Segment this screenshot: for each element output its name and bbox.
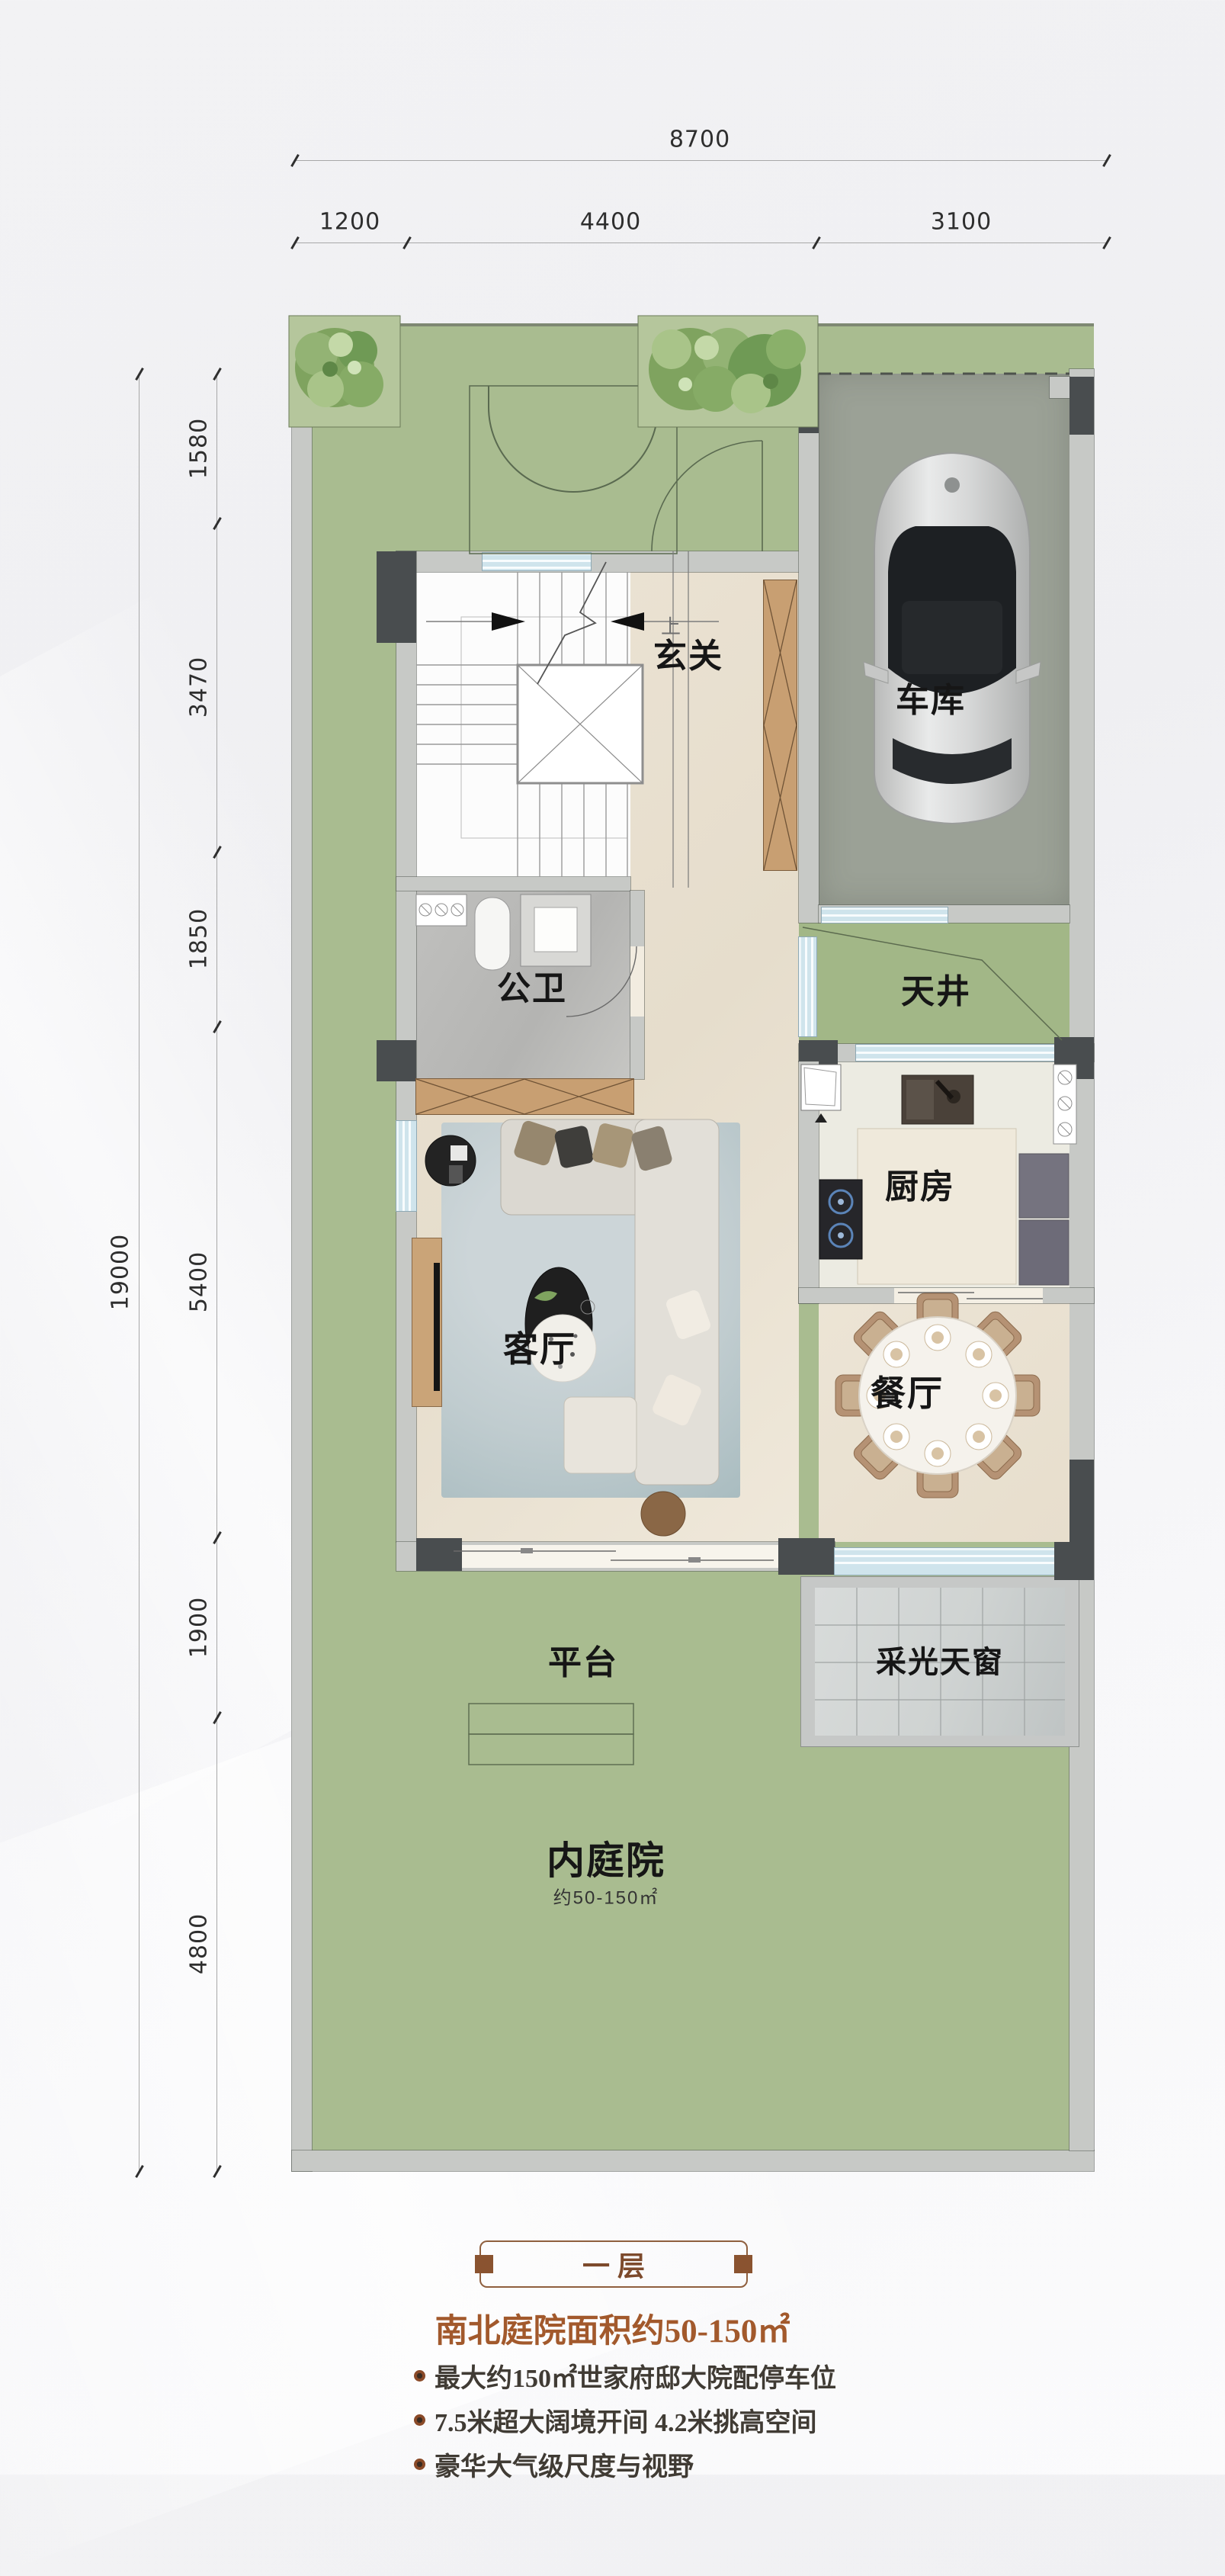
room-label-living: 客厅 <box>503 1322 576 1372</box>
dim-left-seg-2: 1850 <box>186 908 213 969</box>
bullet-text: 7.5米超大阔境开间 4.2米挑高空间 <box>435 2401 817 2439</box>
bullet-text: 豪华大气级尺度与视野 <box>435 2446 694 2483</box>
bullet-row: 7.5米超大阔境开间 4.2米挑高空间 <box>414 2398 836 2442</box>
bullet-icon <box>414 2459 425 2470</box>
terrace-slider <box>454 1548 774 1563</box>
dim-tick <box>213 2165 222 2178</box>
plan-linework <box>292 323 1094 2171</box>
room-label-courtyard: 内庭院 <box>547 1830 665 1885</box>
dim-left-seg-3: 5400 <box>186 1251 213 1312</box>
tv-screen <box>434 1263 440 1391</box>
tree-cluster-right <box>637 314 819 430</box>
dim-tick <box>135 2165 144 2178</box>
dim-top-seg-0: 1200 <box>319 209 380 236</box>
dim-top-seg-1: 4400 <box>580 209 641 236</box>
room-label-lightwell: 天井 <box>901 964 971 1013</box>
dim-tick <box>213 846 222 859</box>
dim-tick <box>213 1531 222 1544</box>
floor-badge: 一层 <box>479 2240 748 2288</box>
bullet-row: 豪华大气级尺度与视野 <box>414 2442 836 2486</box>
dim-left-seg-0: 1580 <box>186 418 213 479</box>
stair-up-label: 上 <box>661 612 682 640</box>
car <box>864 453 1041 824</box>
room-label-dining: 餐厅 <box>871 1366 944 1416</box>
side-table <box>425 1135 476 1186</box>
dim-line-left-total <box>139 374 139 2171</box>
footer-bullets: 最大约150㎡世家府邸大院配停车位 7.5米超大阔境开间 4.2米挑高空间 豪华… <box>414 2353 836 2486</box>
room-label-skylight: 采光天窗 <box>876 1637 1004 1681</box>
dim-line-left-segments <box>216 374 217 2171</box>
dim-line-top-segments <box>294 243 1106 243</box>
dim-left-seg-1: 3470 <box>186 657 213 718</box>
dim-tick <box>213 368 222 381</box>
dim-tick <box>213 517 222 530</box>
dim-left-seg-4: 1900 <box>186 1597 213 1658</box>
courtyard-steps <box>469 1704 633 1765</box>
dim-left-seg-5: 4800 <box>186 1913 213 1974</box>
room-label-bath: 公卫 <box>497 961 567 1010</box>
dim-top-seg-2: 3100 <box>931 209 992 236</box>
dim-tick <box>135 368 144 381</box>
dim-line-top-total <box>294 160 1106 161</box>
bullet-icon <box>414 2370 425 2382</box>
bullet-text: 最大约150㎡世家府邸大院配停车位 <box>435 2357 836 2395</box>
room-label-terrace: 平台 <box>548 1635 618 1684</box>
pouf <box>641 1492 685 1536</box>
bullet-row: 最大约150㎡世家府邸大院配停车位 <box>414 2353 836 2398</box>
dim-top-total: 8700 <box>669 127 730 153</box>
badge-square-left <box>475 2255 493 2273</box>
elevator-shaft <box>518 665 643 783</box>
entry-threshold <box>673 551 688 888</box>
room-label-kitchen: 厨房 <box>885 1159 955 1208</box>
floor-plan: 玄关 上 车库 公卫 天井 厨房 客厅 餐厅 平台 采光天窗 内庭院 约50-1… <box>292 323 1094 2171</box>
bullet-icon <box>414 2414 425 2426</box>
footer-subtitle: 南北庭院面积约50-150㎡ <box>0 2305 1225 2352</box>
floor-badge-label: 一层 <box>575 2244 653 2284</box>
dim-tick <box>213 1020 222 1033</box>
dim-tick <box>213 1711 222 1724</box>
yard-door-arc <box>652 441 762 551</box>
room-label-garage: 车库 <box>896 673 966 721</box>
tree-cluster-left <box>287 314 403 430</box>
dim-left-total: 19000 <box>107 1234 134 1310</box>
courtyard-area-label: 约50-150㎡ <box>553 1883 659 1910</box>
badge-square-right <box>734 2255 752 2273</box>
